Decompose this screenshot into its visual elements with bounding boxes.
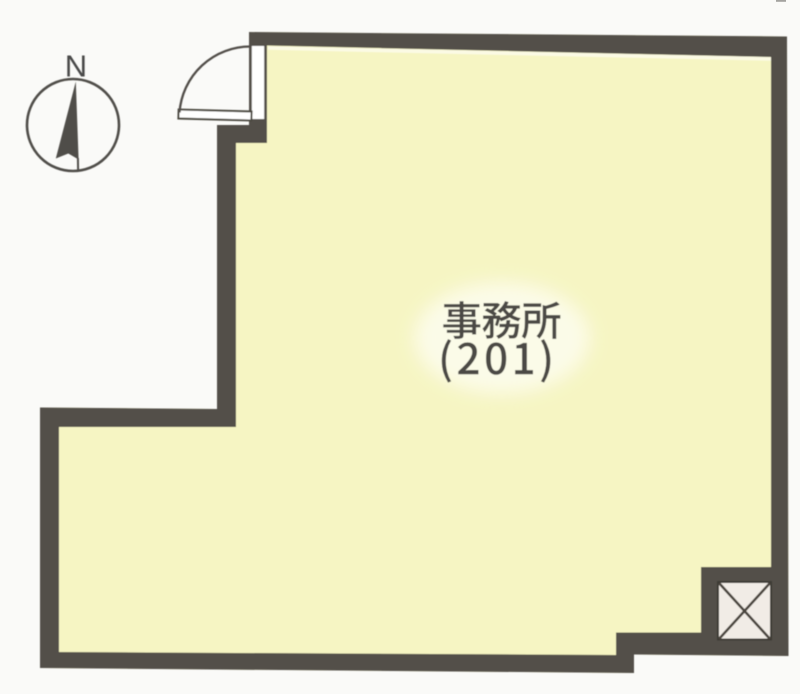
svg-text:N: N — [65, 49, 87, 84]
